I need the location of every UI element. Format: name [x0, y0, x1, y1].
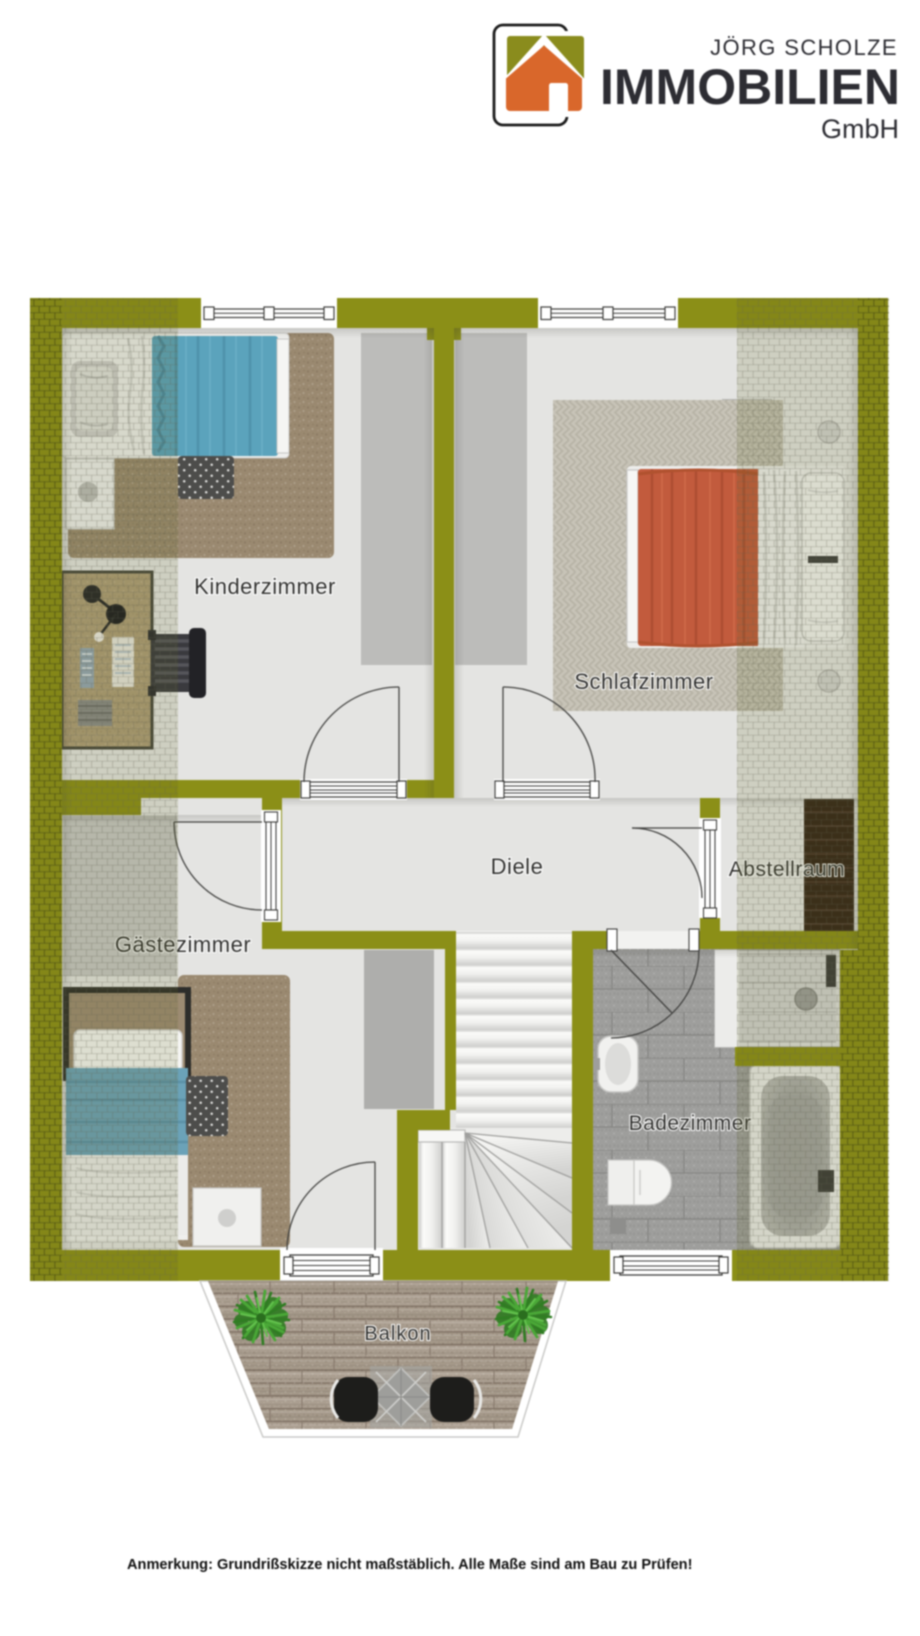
- svg-text:Badezimmer: Badezimmer: [629, 1112, 752, 1135]
- svg-text:IMMOBILIEN: IMMOBILIEN: [600, 59, 900, 115]
- svg-text:Diele: Diele: [491, 854, 544, 879]
- svg-text:Balkon: Balkon: [364, 1323, 431, 1345]
- svg-text:GmbH: GmbH: [821, 114, 899, 144]
- svg-text:Anmerkung: Grundrißskizze nich: Anmerkung: Grundrißskizze nicht maßstäbl…: [127, 1557, 692, 1573]
- svg-text:Kinderzimmer: Kinderzimmer: [194, 574, 336, 599]
- svg-text:JÖRG SCHOLZE: JÖRG SCHOLZE: [710, 35, 898, 60]
- svg-text:Schlafzimmer: Schlafzimmer: [574, 669, 713, 694]
